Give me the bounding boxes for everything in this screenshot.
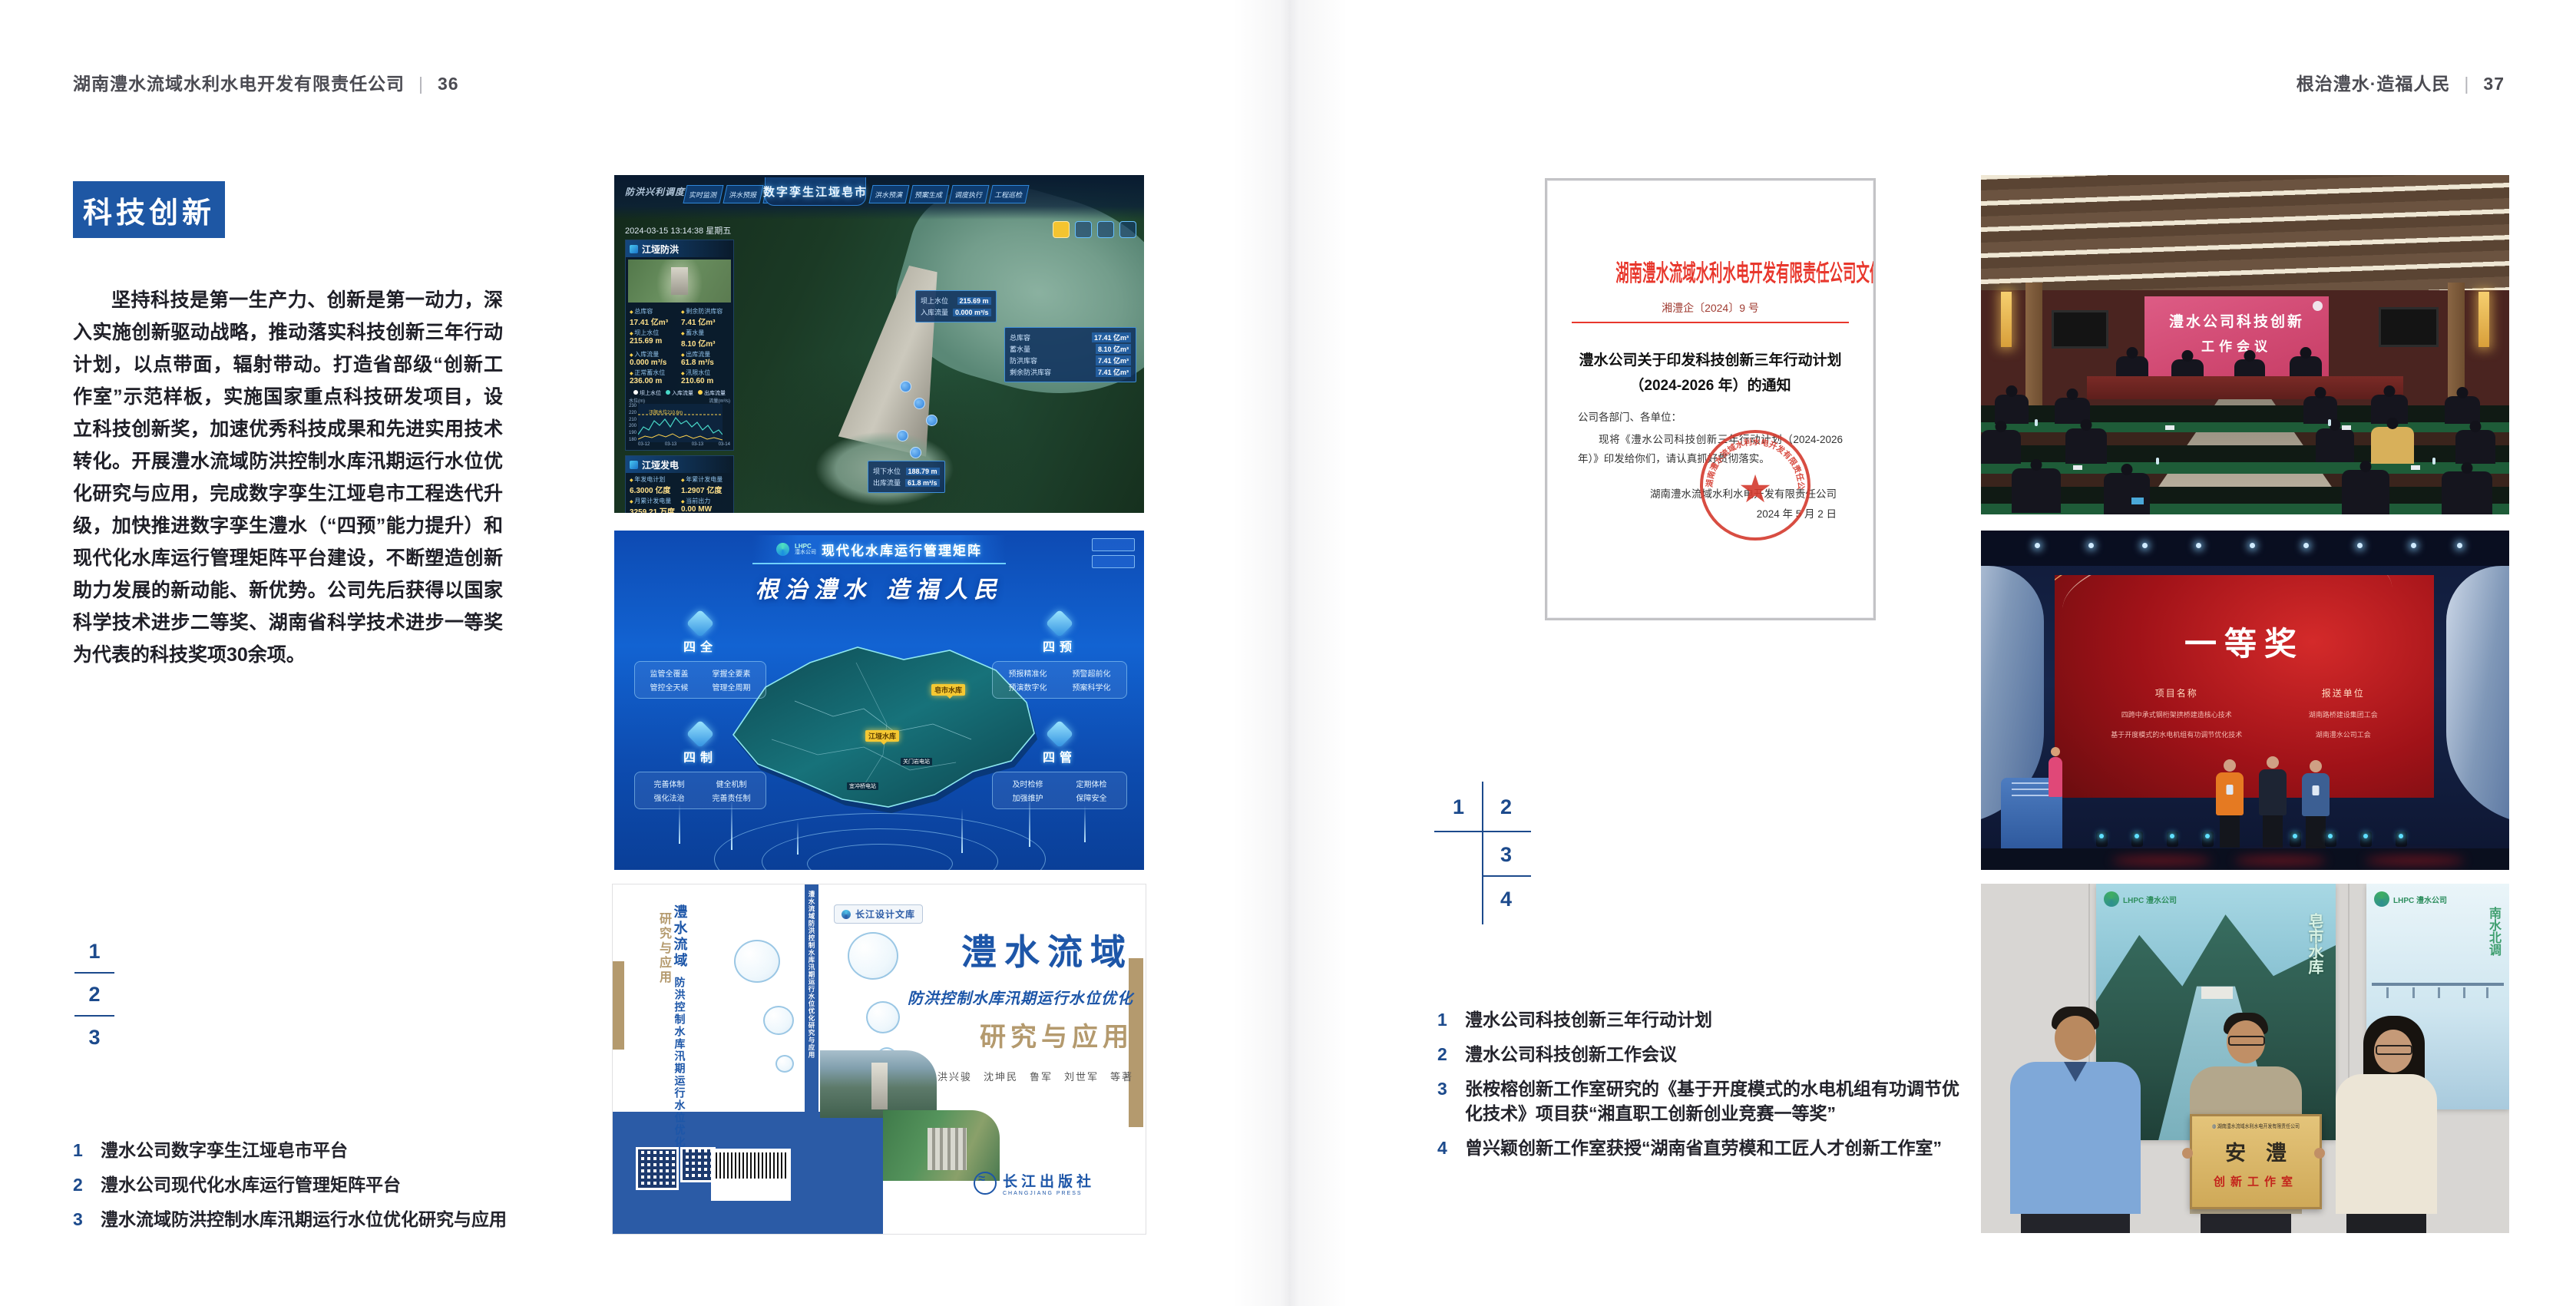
stat: 当前出力0.00 MW <box>681 497 729 513</box>
page-number: 36 <box>438 74 459 94</box>
user-icon <box>1053 221 1070 238</box>
stage-light <box>2360 832 2372 847</box>
index-divider-line <box>74 972 114 974</box>
power-panel-title: 江垭发电 <box>626 456 733 473</box>
water-bottle <box>2156 458 2159 465</box>
panel-icon <box>630 461 638 469</box>
screen-logo-icon <box>2313 301 2323 311</box>
audience-person-yellow <box>2371 427 2414 464</box>
publisher-name: 长江出版社 <box>1003 1173 1095 1190</box>
group-title: 四制 <box>634 747 766 765</box>
section-badge: 科技创新 <box>73 181 225 238</box>
project-column: 项目名称 四跨中承式钢桁架拱桥建造核心技术 基于开度模式的水电机组有功调节优化技… <box>2111 686 2242 739</box>
flood-panel: 江垭防洪 总库容17.41 亿m³ 剩余防洪库容7.41 亿m³ 坝上水位215… <box>625 240 734 451</box>
locate-icon <box>1097 221 1114 238</box>
power-panel: 江垭发电 年发电计划6.3000 亿度 年累计发电量1.2907 亿度 月累计发… <box>625 455 734 513</box>
document-title: 澧水公司关于印发科技创新三年行动计划 （2024-2026 年）的通知 <box>1547 348 1873 398</box>
stat: 汛限水位210.60 m <box>681 369 729 385</box>
water-droplet <box>763 1006 794 1035</box>
page-gutter-shadow <box>1232 0 1348 1306</box>
chart-legend: 坝上水位 入库流量 出库流量 <box>629 389 730 397</box>
station-label: 宜冲桥电站 <box>847 782 878 790</box>
audience-person <box>2342 470 2389 514</box>
gate-marker <box>914 398 925 409</box>
stage-light <box>2096 832 2108 847</box>
speaker-silhouette <box>2171 359 2204 378</box>
audience-person <box>2445 396 2480 424</box>
stat: 出库流量61.8 m³/s <box>681 350 729 367</box>
water-droplet <box>734 940 780 983</box>
figure-index-number: 3 <box>1500 843 1512 867</box>
stage-truss <box>1981 531 2509 566</box>
document-red-rule <box>1572 322 1849 323</box>
publisher-logo-icon <box>974 1172 997 1195</box>
plaque-org: 湖南澧水流域水利水电开发有限责任公司 <box>2201 1122 2310 1130</box>
figure-index-left: 1 2 3 <box>73 938 116 1050</box>
water-bottle <box>2432 458 2435 465</box>
figure-book-cover: 澧水流域 防洪控制水库汛期运行水位优化 研究与应用 澧水流域防洪控制水库汛期运行… <box>612 884 1146 1235</box>
alert-icon <box>1119 221 1136 238</box>
caption-text: 澧水公司数字孪生江垭皂市平台 <box>101 1138 541 1162</box>
hand <box>2182 1148 2193 1159</box>
company-logo-icon <box>2104 891 2119 907</box>
caption-text: 曾兴颖创新工作室获授“湖南省直劳模和工匠人才创新工作室” <box>1465 1136 1964 1160</box>
figure-caption: 2 澧水公司现代化水库运行管理矩阵平台 <box>73 1172 541 1197</box>
figure-caption: 1 澧水公司数字孪生江垭皂市平台 <box>73 1138 541 1162</box>
index-line <box>1482 782 1483 924</box>
figure-index-number: 2 <box>73 981 116 1007</box>
audience-person <box>2065 428 2107 464</box>
close-button <box>1092 538 1135 551</box>
figure-workshop-photo: LHPC 澧水公司 皂市水库 LHPC 澧水公司 南水北调 <box>1981 884 2509 1233</box>
slogan: 根治澧水·造福人民 <box>2297 74 2451 94</box>
caption-number: 2 <box>1437 1042 1465 1066</box>
stat: 正常蓄水位236.00 m <box>630 369 678 385</box>
group-icon <box>686 610 715 638</box>
speaker-silhouette <box>2290 356 2322 378</box>
y-axis-ticks: 230 220 210 200 190 180 <box>629 404 637 442</box>
dashboard-tab: 预案生成 <box>908 185 949 203</box>
group-icon <box>686 720 715 749</box>
stat: 年发电计划6.3000 亿度 <box>630 475 678 495</box>
tooltip-downstream: 坝下水位188.79 m 出库流量61.8 m³/s <box>868 461 945 493</box>
paper <box>2411 465 2420 470</box>
left-page-header: 湖南澧水流域水利水电开发有限责任公司|36 <box>73 69 459 95</box>
matrix-group-siguan: 四管 及时检修定期体检 加强维护保障安全 <box>992 724 1127 809</box>
right-page-header: 根治澧水·造福人民|37 <box>2297 69 2505 95</box>
figure-digital-twin-dashboard: 防洪兴利调度 实时监测 洪水预报 防洪预警 数字孪生江垭皂市 洪水预演 预案生成… <box>614 175 1144 513</box>
book-title-tail: 研究与应用 <box>851 1016 1133 1053</box>
group-panel: 完善体制健全机制 强化法治完善责任制 <box>634 772 766 809</box>
dashboard-tab: 洪水预报 <box>723 185 763 203</box>
stat: 坝上水位215.69 m <box>630 329 678 349</box>
figure-index-number: 3 <box>73 1024 116 1050</box>
water-level-chart: 坝上水位 入库流量 出库流量 水位(m) 流量(m³/s) 汛限水位210.6m… <box>626 388 733 450</box>
dam-aerial-thumbnail <box>628 260 731 303</box>
stat: 总库容17.41 亿m³ <box>630 307 678 327</box>
gate-marker <box>900 381 911 392</box>
audience-person <box>2104 473 2150 514</box>
caption-number: 4 <box>1437 1136 1465 1160</box>
company-logo: LHPC 澧水公司 <box>2104 891 2177 907</box>
figure-caption: 2 澧水公司科技创新工作会议 <box>1437 1042 1964 1066</box>
unit-column: 报送单位 湖南路桥建设集团工会 湖南澧水公司工会 <box>2309 686 2378 739</box>
stage-light <box>2167 832 2178 847</box>
caption-text: 澧水流域防洪控制水库汛期运行水位优化研究与应用 <box>101 1207 541 1232</box>
matrix-group-siquan: 四全 监管全覆盖掌握全要素 管控全天候管理全周期 <box>634 613 766 699</box>
green-desk-row <box>1981 462 2509 474</box>
gate-marker <box>926 415 937 426</box>
figure-meeting-photo: 澧水公司科技创新 工作会议 <box>1981 175 2509 514</box>
company-name: 湖南澧水流域水利水电开发有限责任公司 <box>73 74 405 94</box>
figure-index-right: 1 2 3 4 <box>1434 782 1534 929</box>
caption-number: 3 <box>73 1207 101 1232</box>
dashboard-tab: 实时监测 <box>683 185 723 203</box>
group-panel: 预报精准化预警超前化 预演数字化预案科学化 <box>992 661 1127 699</box>
figure-index-number: 1 <box>1453 795 1464 819</box>
poster-calligraphy: 皂市水库 <box>2304 913 2326 974</box>
publisher-mark: 长江出版社CHANGJIANG PRESS <box>974 1170 1095 1196</box>
group-panel: 监管全覆盖掌握全要素 管控全天候管理全周期 <box>634 661 766 699</box>
matrix-group-sizhi: 四制 完善体制健全机制 强化法治完善责任制 <box>634 724 766 809</box>
back-cover-tan-block <box>613 961 624 1050</box>
led-screen: 一等奖 项目名称 四跨中承式钢桁架拱桥建造核心技术 基于开度模式的水电机组有功调… <box>2055 575 2434 798</box>
water-bottle <box>2328 419 2331 426</box>
panel-title-text: 江垭防洪 <box>642 243 679 256</box>
figure-matrix-platform: LHPC澧水公司 现代化水库运行管理矩阵 根治澧水 造福人民 皂市水库 江垭水库 <box>614 531 1144 870</box>
audience-person <box>2316 428 2354 462</box>
audience-person <box>2442 471 2492 514</box>
caption-number: 1 <box>73 1138 101 1162</box>
index-line <box>1482 875 1531 877</box>
audience-person <box>2012 468 2061 513</box>
dashboard-datetime: 2024-03-15 13:14:38 星期五 <box>625 224 731 236</box>
water-bottle <box>2035 419 2038 426</box>
group-icon <box>1046 720 1074 749</box>
hand <box>2314 1148 2325 1159</box>
dashboard-toolbar-icons <box>1053 221 1136 238</box>
header-divider: | <box>418 74 424 94</box>
audience-person <box>2455 430 2495 464</box>
speaker-silhouette <box>2116 356 2148 378</box>
side-tv-screen <box>2052 310 2108 349</box>
wall-lamp <box>2001 292 2012 347</box>
awardee-orange <box>2216 759 2244 848</box>
paper <box>2073 465 2082 470</box>
matrix-slogan: 根治澧水 造福人民 <box>614 570 1144 604</box>
figure-caption: 1 澧水公司科技创新三年行动计划 <box>1437 1007 1964 1032</box>
dashboard-title: 数字孪生江垭皂市 <box>765 177 866 206</box>
figure-index-number: 2 <box>1500 795 1512 819</box>
figure-index-number: 4 <box>1500 888 1512 911</box>
figure-caption: 3 澧水流域防洪控制水库汛期运行水位优化研究与应用 <box>73 1207 541 1232</box>
chart-annotation: 汛限水位210.6m <box>649 408 683 415</box>
book-spine: 澧水流域防洪控制水库汛期运行水位优化研究与应用 <box>805 884 818 1112</box>
caption-text: 澧水公司现代化水库运行管理矩阵平台 <box>101 1172 541 1197</box>
figure-index-number: 1 <box>73 938 116 964</box>
book-title-sub: 防洪控制水库汛期运行水位优化 <box>851 986 1133 1008</box>
group-panel: 及时检修定期体检 加强维护保障安全 <box>992 772 1127 809</box>
station-label: 关门岩电站 <box>901 758 932 765</box>
audience-person <box>1995 395 2029 424</box>
publisher-name-en: CHANGJIANG PRESS <box>1003 1191 1095 1196</box>
tooltip-upstream: 坝上水位215.69 m 入库流量0.000 m³/s <box>915 290 997 322</box>
barcode <box>711 1149 791 1201</box>
figure-captions-right: 1 澧水公司科技创新三年行动计划 2 澧水公司科技创新工作会议 3 张桉榕创新工… <box>1437 1007 1964 1170</box>
matrix-group-siyu: 四预 预报精准化预警超前化 预演数字化预案科学化 <box>992 613 1127 699</box>
figure-captions-left: 1 澧水公司数字孪生江垭皂市平台 2 澧水公司现代化水库运行管理矩阵平台 3 澧… <box>73 1138 541 1242</box>
figure-caption: 4 曾兴颖创新工作室获授“湖南省直劳模和工匠人才创新工作室” <box>1437 1136 1964 1160</box>
stat: 蓄水量8.10 亿m³ <box>681 329 729 349</box>
caption-text: 澧水公司科技创新三年行动计划 <box>1465 1007 1964 1032</box>
plaque-name: 安澧 <box>2192 1136 2320 1166</box>
flood-stats-grid: 总库容17.41 亿m³ 剩余防洪库容7.41 亿m³ 坝上水位215.69 m… <box>626 305 733 388</box>
document-number: 湘澧企〔2024〕9 号 <box>1547 300 1873 316</box>
panel-icon <box>630 245 638 253</box>
logo-abbr: LHPC <box>795 544 816 550</box>
official-red-seal: 湖南澧水流域水利水电开发有限责任公司 ★ <box>1698 428 1813 543</box>
group-title: 四预 <box>992 636 1127 655</box>
brochure-spread: 湖南澧水流域水利水电开发有限责任公司|36 科技创新 坚持科技是第一生产力、创新… <box>0 0 2576 1306</box>
stat: 入库流量0.000 m³/s <box>630 350 678 367</box>
caption-text: 澧水公司科技创新工作会议 <box>1465 1042 1964 1066</box>
stage-light <box>2290 832 2301 847</box>
page-number: 37 <box>2483 74 2505 94</box>
paper <box>2165 425 2174 430</box>
stat: 年累计发电量1.2907 亿度 <box>681 475 729 495</box>
qr-code <box>636 1147 679 1190</box>
stat: 剩余防洪库容7.41 亿m³ <box>681 307 729 327</box>
reservoir-label: 江垭水库 <box>865 730 899 742</box>
plaque-subtitle: 创新工作室 <box>2192 1173 2320 1189</box>
reservoir-label: 皂市水库 <box>931 684 965 696</box>
stage-side-panel <box>2446 566 2509 824</box>
workshop-plaque: 湖南澧水流域水利水电开发有限责任公司 安澧 创新工作室 <box>2190 1114 2322 1209</box>
company-logo-icon <box>776 543 789 556</box>
axis-unit-left: 水位(m) <box>629 397 645 404</box>
index-line <box>1434 831 1531 832</box>
dashboard-corner-label: 防洪兴利调度 <box>625 185 685 198</box>
x-axis-ticks: 03-12 03-13 03-13 03-14 <box>638 442 730 447</box>
side-tv-screen <box>2379 307 2439 347</box>
wall-lamp <box>2478 292 2489 347</box>
svg-text:★: ★ <box>1738 468 1773 511</box>
stage-light <box>2131 832 2143 847</box>
group-title: 四管 <box>992 747 1127 765</box>
figure-caption: 3 张桉榕创新工作室研究的《基于开度模式的水电机组有功调节优化技术》项目获“湘直… <box>1437 1076 1964 1126</box>
poster-calligraphy: 南水北调 <box>2485 907 2503 956</box>
tissue-box <box>2131 498 2144 504</box>
stage-light <box>2396 832 2407 847</box>
water-droplet <box>775 1055 794 1073</box>
power-stats-grid: 年发电计划6.3000 亿度 年累计发电量1.2907 亿度 月累计发电量325… <box>626 473 733 513</box>
index-divider-line <box>74 1015 114 1017</box>
host-silhouette <box>2047 747 2064 797</box>
dashboard-tab: 洪水预演 <box>868 185 909 203</box>
company-logo: LHPC 澧水公司 <box>2374 891 2447 907</box>
cover-dam-photo <box>820 1050 937 1118</box>
dashboard-tab: 调度执行 <box>948 185 989 203</box>
stage-light <box>2325 832 2336 847</box>
group-icon <box>1046 610 1074 638</box>
paper <box>2342 425 2351 430</box>
axis-unit-right: 流量(m³/s) <box>709 397 730 404</box>
spine-title: 澧水流域防洪控制水库汛期运行水位优化研究与应用 <box>807 891 816 1059</box>
stage-light <box>2202 832 2214 847</box>
header-divider: | <box>2464 74 2469 94</box>
gate-marker <box>910 447 921 458</box>
company-logo-icon <box>2374 891 2389 907</box>
menu-button <box>1092 555 1135 568</box>
matrix-header: LHPC澧水公司 现代化水库运行管理矩阵 <box>752 535 1006 564</box>
matrix-title: 现代化水库运行管理矩阵 <box>822 540 982 559</box>
document-red-header: 湖南澧水流域水利水电开发有限责任公司文件 <box>1615 254 1805 288</box>
head-table <box>2087 376 2403 399</box>
presenter-suit <box>2259 756 2287 848</box>
dashboard-tabs-right: 洪水预演 预案生成 调度执行 工程巡检 <box>871 185 1027 203</box>
caption-number: 2 <box>73 1172 101 1197</box>
tooltip-capacity: 总库容17.41 亿m³ 蓄水量8.10 亿m³ 防洪库容7.41 亿m³ 剩余… <box>1004 327 1136 382</box>
book-title-main: 澧水流域 <box>851 924 1133 975</box>
caption-number: 3 <box>1437 1076 1465 1101</box>
dashboard-side-panels: 江垭防洪 总库容17.41 亿m³ 剩余防洪库容7.41 亿m³ 坝上水位215… <box>625 240 734 508</box>
figure-official-document: 湖南澧水流域水利水电开发有限责任公司文件 湘澧企〔2024〕9 号 澧水公司关于… <box>1545 178 1876 620</box>
caption-text: 张桉榕创新工作室研究的《基于开度模式的水电机组有功调节优化技术》项目获“湘直职工… <box>1465 1076 1964 1126</box>
wood-pillar <box>2025 283 2042 405</box>
gate-marker <box>897 430 908 441</box>
dashboard-tab: 工程巡检 <box>988 185 1029 203</box>
logo-name: 澧水公司 <box>795 550 816 555</box>
body-paragraph: 坚持科技是第一生产力、创新是第一动力，深入实施创新驱动战略，推动落实科技创新三年… <box>73 284 503 671</box>
meeting-ceiling <box>1981 175 2509 290</box>
screen-title-line1: 澧水公司科技创新 <box>2144 310 2329 331</box>
flood-panel-title: 江垭防洪 <box>626 240 733 257</box>
figure-award-ceremony: 一等奖 项目名称 四跨中承式钢桁架拱桥建造核心技术 基于开度模式的水电机组有功调… <box>1981 531 2509 870</box>
back-cover-title: 澧水流域 防洪控制水库汛期运行水位优化 研究与应用 <box>656 904 689 1158</box>
series-badge: 长江设计文库 <box>834 904 923 924</box>
stat: 月累计发电量3259.21 万度 <box>630 497 678 513</box>
series-logo-icon <box>842 910 851 919</box>
layers-icon <box>1075 221 1092 238</box>
caption-number: 1 <box>1437 1007 1465 1032</box>
speaker-silhouette <box>2234 359 2265 378</box>
audience-person <box>1981 430 2021 464</box>
group-title: 四全 <box>634 636 766 655</box>
panel-title-text: 江垭发电 <box>642 458 679 471</box>
